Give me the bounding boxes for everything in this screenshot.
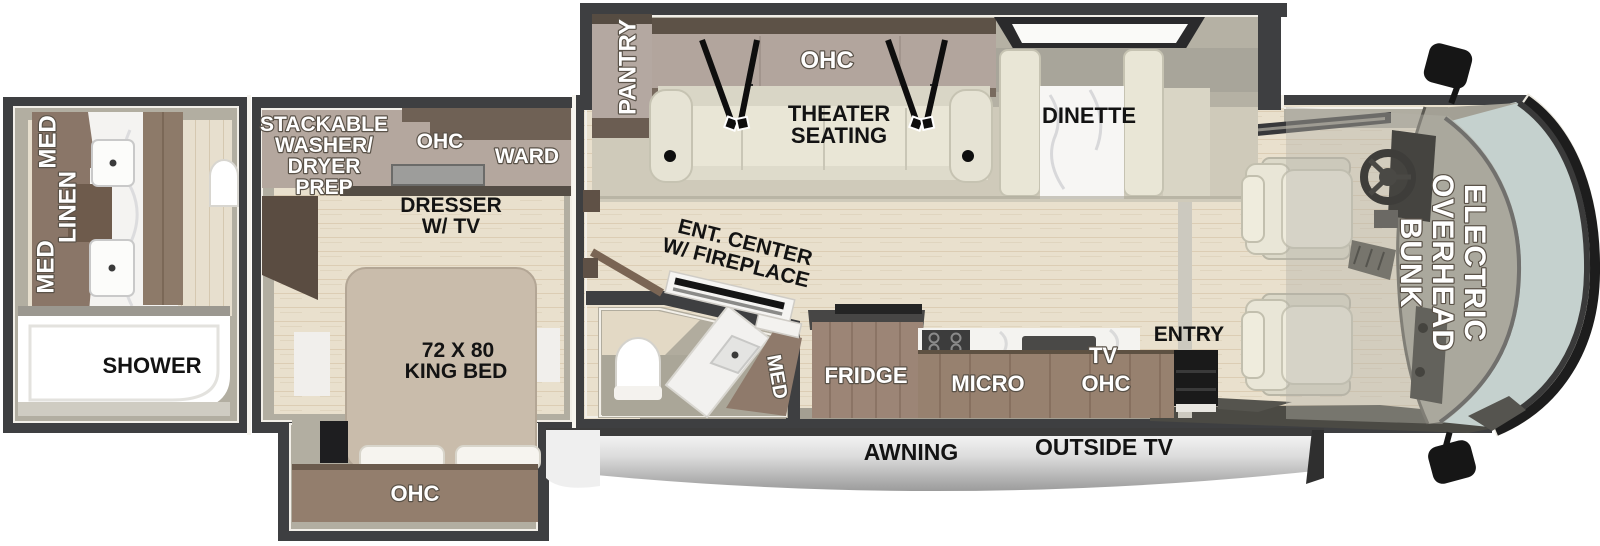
svg-text:SEATING: SEATING	[791, 123, 887, 148]
svg-text:OHC: OHC	[1082, 371, 1131, 396]
svg-text:PANTRY: PANTRY	[614, 19, 641, 115]
svg-text:WARD: WARD	[495, 145, 559, 168]
svg-text:MED: MED	[32, 240, 59, 293]
svg-text:PREP: PREP	[295, 176, 352, 199]
svg-text:FRIDGE: FRIDGE	[824, 363, 907, 388]
svg-text:MED: MED	[34, 115, 61, 168]
svg-text:WASHER/: WASHER/	[275, 134, 373, 157]
svg-text:OHC: OHC	[417, 130, 464, 153]
svg-text:72 X 80: 72 X 80	[422, 339, 494, 362]
svg-text:DRESSER: DRESSER	[400, 194, 502, 217]
svg-text:W/ TV: W/ TV	[422, 215, 480, 238]
svg-text:TV: TV	[1089, 343, 1117, 368]
svg-text:OVERHEAD: OVERHEAD	[1426, 174, 1459, 352]
svg-text:BUNK: BUNK	[1394, 218, 1427, 309]
svg-text:OHC: OHC	[391, 481, 440, 506]
svg-text:ELECTRIC: ELECTRIC	[1458, 184, 1491, 342]
svg-text:AWNING: AWNING	[864, 439, 959, 465]
svg-text:SHOWER: SHOWER	[103, 353, 202, 378]
svg-text:OHC: OHC	[800, 47, 853, 74]
svg-text:DRYER: DRYER	[288, 155, 361, 178]
svg-text:STACKABLE: STACKABLE	[260, 113, 388, 136]
svg-text:OUTSIDE TV: OUTSIDE TV	[1035, 434, 1174, 460]
svg-text:LINEN: LINEN	[54, 171, 81, 243]
svg-text:KING BED: KING BED	[405, 360, 508, 383]
svg-text:MICRO: MICRO	[951, 371, 1024, 396]
svg-text:ENTRY: ENTRY	[1154, 323, 1224, 346]
svg-text:DINETTE: DINETTE	[1042, 103, 1136, 128]
